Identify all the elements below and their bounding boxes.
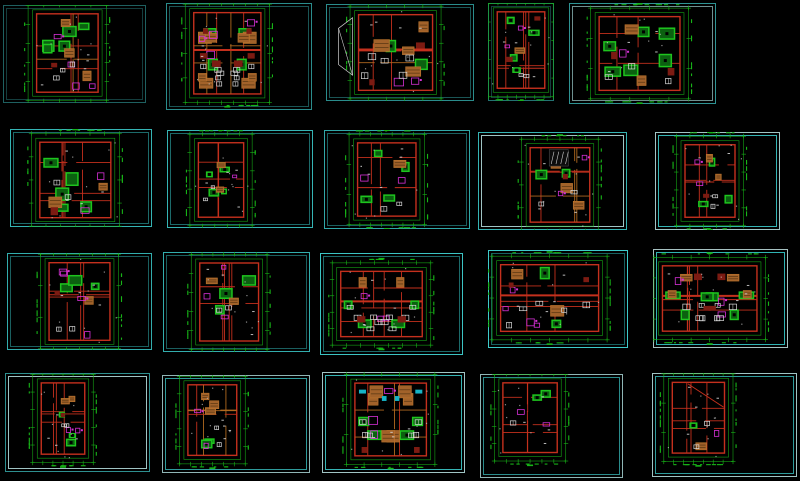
floorplan-r2c2[interactable] [167, 130, 313, 228]
floorplan-drawing-r2c2 [167, 130, 313, 228]
floorplan-r3c1[interactable] [7, 253, 152, 350]
floorplan-drawing-r2c3 [324, 130, 470, 229]
floorplan-drawing-r3c4 [488, 250, 628, 348]
floorplan-r3c4[interactable] [488, 250, 628, 348]
floorplan-r1c1[interactable] [3, 5, 146, 103]
floorplan-drawing-r1c5 [569, 3, 716, 104]
floorplan-drawing-r4c3 [322, 372, 465, 473]
floorplan-drawing-r3c3 [320, 253, 463, 355]
floorplan-drawing-r4c5 [652, 373, 797, 477]
floorplan-r2c4[interactable] [478, 132, 627, 230]
floorplan-r1c5[interactable] [569, 3, 716, 104]
floorplan-r4c5[interactable] [652, 373, 797, 477]
floorplan-drawing-r3c1 [7, 253, 152, 350]
floorplan-drawing-r4c4 [480, 374, 623, 478]
floorplan-r3c3[interactable] [320, 253, 463, 355]
floorplan-drawing-r2c4 [478, 132, 627, 230]
floorplan-r4c3[interactable] [322, 372, 465, 473]
floorplan-drawing-r3c5 [653, 249, 788, 348]
floorplan-r3c5[interactable] [653, 249, 788, 348]
drawing-canvas [0, 0, 800, 481]
floorplan-drawing-r1c3 [326, 4, 474, 101]
floorplan-r1c2[interactable] [166, 3, 312, 110]
floorplan-r4c1[interactable] [5, 373, 150, 472]
floorplan-drawing-r3c2 [163, 252, 310, 352]
floorplan-drawing-r1c1 [3, 5, 146, 103]
floorplan-drawing-r2c1 [10, 129, 152, 227]
floorplan-r1c4[interactable] [488, 3, 554, 101]
floorplan-r2c5[interactable] [655, 132, 780, 230]
floorplan-r2c3[interactable] [324, 130, 470, 229]
floorplan-drawing-r2c5 [655, 132, 780, 230]
floorplan-drawing-r4c1 [5, 373, 150, 472]
floorplan-r4c2[interactable] [162, 375, 310, 473]
floorplan-r1c3[interactable] [326, 4, 474, 101]
floorplan-r4c4[interactable] [480, 374, 623, 478]
floorplan-r3c2[interactable] [163, 252, 310, 352]
floorplan-r2c1[interactable] [10, 129, 152, 227]
floorplan-drawing-r1c4 [488, 3, 554, 101]
floorplan-drawing-r4c2 [162, 375, 310, 473]
floorplan-drawing-r1c2 [166, 3, 312, 110]
